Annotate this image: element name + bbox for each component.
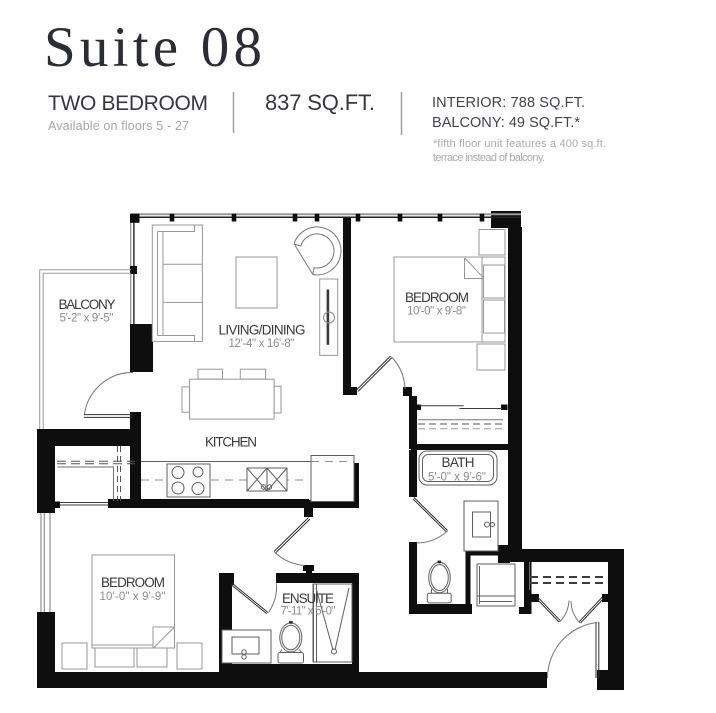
svg-text:837 SQ.FT.: 837 SQ.FT. [265,90,375,115]
svg-text:Available on floors 5 - 27: Available on floors 5 - 27 [48,119,189,133]
svg-text:12'-4" x 16'-8": 12'-4" x 16'-8" [229,338,295,350]
svg-text:INTERIOR: 788 SQ.FT.: INTERIOR: 788 SQ.FT. [432,95,585,111]
svg-text:TWO BEDROOM: TWO BEDROOM [48,92,208,115]
svg-text:BALCONY: BALCONY [59,297,116,312]
svg-text:BEDROOM: BEDROOM [405,290,469,305]
svg-text:BEDROOM: BEDROOM [101,575,165,590]
svg-text:5'-2" x 9'-5": 5'-2" x 9'-5" [60,313,114,325]
svg-text:terrace instead of balcony.: terrace instead of balcony. [433,152,545,164]
svg-text:ENSUITE: ENSUITE [282,591,334,606]
svg-text:10'-0" x 9'-8": 10'-0" x 9'-8" [407,306,466,318]
svg-text:BALCONY: 49 SQ.FT.*: BALCONY: 49 SQ.FT.* [432,115,580,131]
svg-text:10'-0" x 9'-9": 10'-0" x 9'-9" [100,591,166,603]
svg-text:KITCHEN: KITCHEN [205,435,257,450]
svg-text:5'-0" x 9'-6": 5'-0" x 9'-6" [428,472,486,484]
svg-text:*fifth floor unit features a 4: *fifth floor unit features a 400 sq.ft. [433,138,606,150]
svg-text:BATH: BATH [442,455,475,470]
svg-text:LIVING/DINING: LIVING/DINING [219,323,306,338]
svg-text:7'-11" x 5'-0": 7'-11" x 5'-0" [281,606,336,618]
